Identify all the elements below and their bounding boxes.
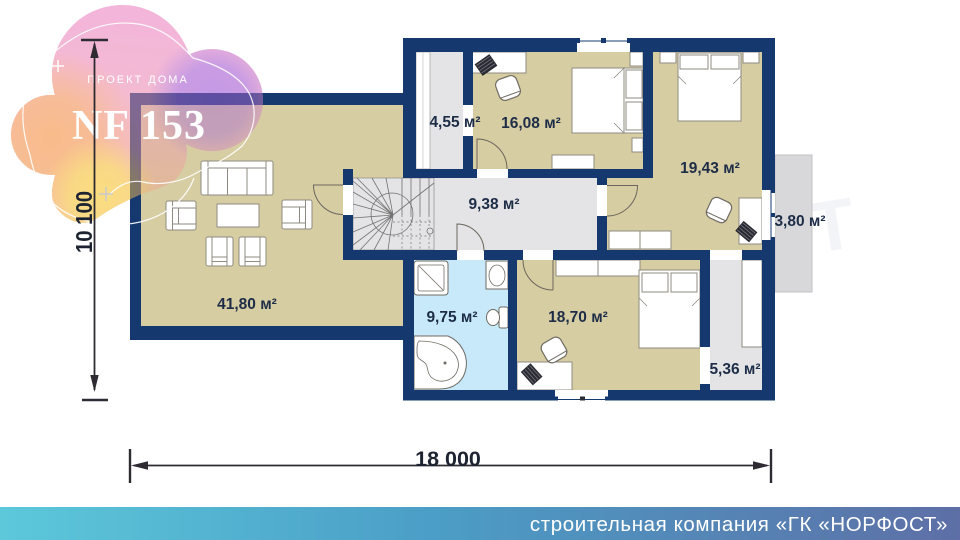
svg-text:16,08 м²: 16,08 м² bbox=[501, 115, 561, 132]
svg-text:19,43 м²: 19,43 м² bbox=[680, 160, 740, 177]
svg-text:18,70 м²: 18,70 м² bbox=[548, 309, 608, 326]
svg-text:строительная компания «ГК «НОР: строительная компания «ГК «НОРФОСТ» bbox=[530, 513, 948, 536]
svg-text:18 000: 18 000 bbox=[415, 447, 481, 471]
svg-text:ПРОЕКТ ДОМА: ПРОЕКТ ДОМА bbox=[87, 74, 189, 86]
svg-text:10 100: 10 100 bbox=[71, 191, 97, 253]
svg-text:9,38 м²: 9,38 м² bbox=[468, 196, 519, 213]
svg-text:41,80 м²: 41,80 м² bbox=[217, 296, 277, 313]
svg-text:9,75 м²: 9,75 м² bbox=[426, 309, 477, 326]
svg-text:5,36 м²: 5,36 м² bbox=[709, 361, 760, 378]
svg-text:4,55 м²: 4,55 м² bbox=[429, 114, 480, 131]
svg-text:NF 153: NF 153 bbox=[72, 103, 206, 149]
svg-text:3,80 м²: 3,80 м² bbox=[774, 213, 825, 230]
